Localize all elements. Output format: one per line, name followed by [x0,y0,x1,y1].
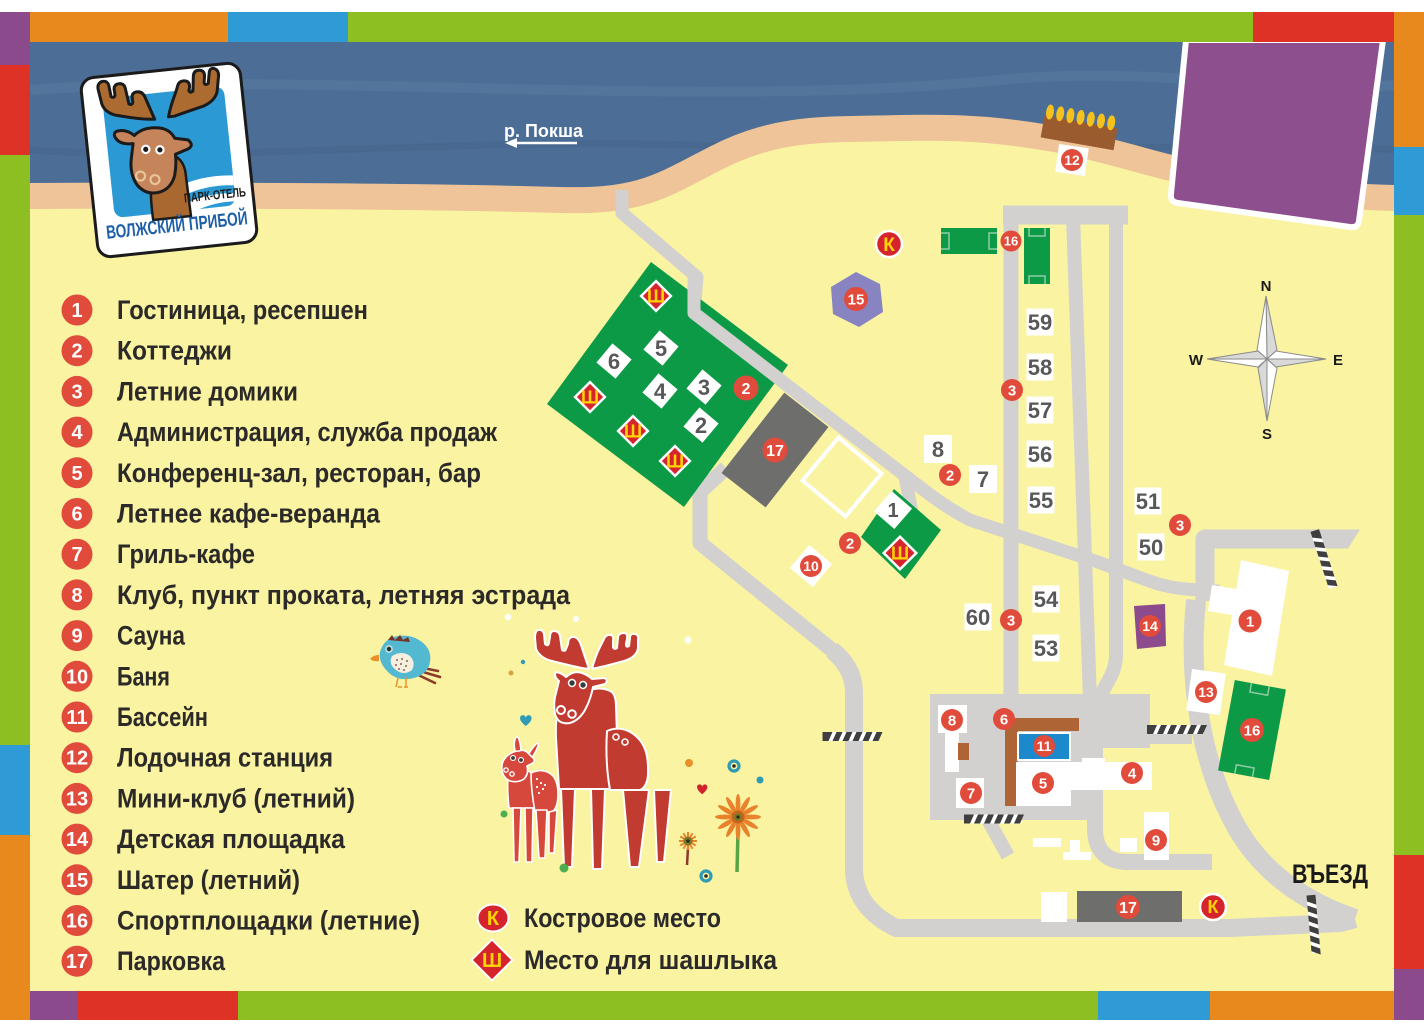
svg-text:Ш: Ш [647,287,665,307]
svg-text:1: 1 [887,500,898,522]
svg-text:54: 54 [1034,587,1059,612]
svg-text:7: 7 [977,467,989,492]
svg-text:Парковка: Парковка [117,946,226,976]
svg-text:15: 15 [66,870,88,892]
svg-text:Костровое место: Костровое место [524,903,721,933]
svg-text:К: К [487,908,500,930]
svg-text:59: 59 [1028,310,1052,335]
svg-text:13: 13 [66,788,88,810]
svg-text:12: 12 [66,748,88,770]
svg-text:Мини-клуб (летний): Мини-клуб (летний) [117,783,355,813]
svg-text:Коттеджи: Коттеджи [117,336,232,366]
svg-text:Летние домики: Летние домики [117,376,298,406]
svg-text:14: 14 [66,829,89,851]
svg-text:56: 56 [1028,442,1052,467]
svg-text:Баня: Баня [117,661,170,691]
svg-text:5: 5 [655,336,667,361]
svg-text:15: 15 [848,291,865,308]
svg-text:Конференц-зал, ресторан, бар: Конференц-зал, ресторан, бар [117,458,481,488]
svg-text:17: 17 [766,443,784,460]
svg-text:17: 17 [1119,900,1137,917]
svg-text:16: 16 [1244,722,1261,739]
svg-text:2: 2 [695,413,707,438]
svg-text:3: 3 [1007,612,1015,629]
svg-text:10: 10 [803,558,819,574]
svg-text:60: 60 [966,605,990,630]
svg-text:2: 2 [846,535,854,552]
svg-text:К: К [1208,897,1220,917]
svg-text:6: 6 [1000,711,1008,728]
svg-text:6: 6 [608,349,620,374]
svg-text:ВЪЕЗД: ВЪЕЗД [1292,859,1368,889]
svg-text:2: 2 [742,381,751,398]
svg-text:E: E [1333,352,1343,369]
svg-text:Летнее кафе-веранда: Летнее кафе-веранда [117,499,381,529]
svg-text:57: 57 [1028,398,1052,423]
svg-text:Ш: Ш [624,422,642,442]
svg-text:1: 1 [1246,613,1254,630]
svg-text:Лодочная станция: Лодочная станция [117,743,333,773]
svg-text:58: 58 [1028,355,1052,380]
svg-text:Детская площадка: Детская площадка [117,824,346,854]
svg-text:2: 2 [71,341,82,363]
svg-text:13: 13 [1198,684,1214,700]
svg-text:51: 51 [1136,489,1160,514]
svg-text:1: 1 [71,300,82,322]
svg-text:3: 3 [1008,382,1016,399]
svg-text:7: 7 [71,544,82,566]
svg-text:Сауна: Сауна [117,621,186,651]
svg-text:4: 4 [654,379,667,404]
svg-text:50: 50 [1139,535,1163,560]
svg-text:Клуб, пункт проката, летняя эс: Клуб, пункт проката, летняя эстрада [117,580,571,610]
svg-text:53: 53 [1034,636,1058,661]
svg-text:16: 16 [66,911,88,933]
svg-text:Бассейн: Бассейн [117,702,208,732]
svg-text:5: 5 [1039,775,1047,792]
svg-text:S: S [1262,426,1272,443]
svg-text:Место для шашлыка: Место для шашлыка [524,945,778,975]
svg-text:N: N [1261,278,1272,295]
svg-text:12: 12 [1064,152,1080,168]
svg-text:Гостиница, ресепшен: Гостиница, ресепшен [117,295,368,325]
svg-text:W: W [1189,352,1204,369]
svg-text:7: 7 [967,785,975,802]
svg-text:3: 3 [698,375,710,400]
svg-text:10: 10 [66,666,88,688]
svg-text:4: 4 [71,422,83,444]
svg-text:К: К [883,235,895,256]
svg-text:9: 9 [1152,832,1160,849]
svg-text:Ш: Ш [482,950,502,972]
svg-text:8: 8 [948,712,956,729]
svg-text:Ш: Ш [891,544,909,564]
svg-text:р. Покша: р. Покша [504,121,584,141]
svg-text:Администрация, служба продаж: Администрация, служба продаж [117,417,498,447]
svg-text:4: 4 [1128,765,1137,782]
svg-text:Ш: Ш [666,452,684,472]
svg-text:Шатер (летний): Шатер (летний) [117,865,300,895]
svg-text:16: 16 [1004,234,1018,249]
svg-text:5: 5 [71,463,82,485]
svg-text:17: 17 [66,951,88,973]
svg-text:9: 9 [71,626,82,648]
svg-text:11: 11 [1037,738,1052,754]
svg-text:Ш: Ш [581,388,599,408]
svg-text:6: 6 [71,504,82,526]
svg-text:Спортплощадки (летние): Спортплощадки (летние) [117,906,420,936]
svg-text:8: 8 [71,585,82,607]
svg-text:8: 8 [932,437,944,462]
svg-text:Гриль-кафе: Гриль-кафе [117,539,255,569]
svg-text:11: 11 [66,707,87,729]
svg-text:2: 2 [946,467,954,484]
svg-text:3: 3 [71,381,82,403]
svg-text:14: 14 [1142,618,1158,634]
svg-text:3: 3 [1176,517,1184,534]
svg-text:55: 55 [1029,488,1053,513]
